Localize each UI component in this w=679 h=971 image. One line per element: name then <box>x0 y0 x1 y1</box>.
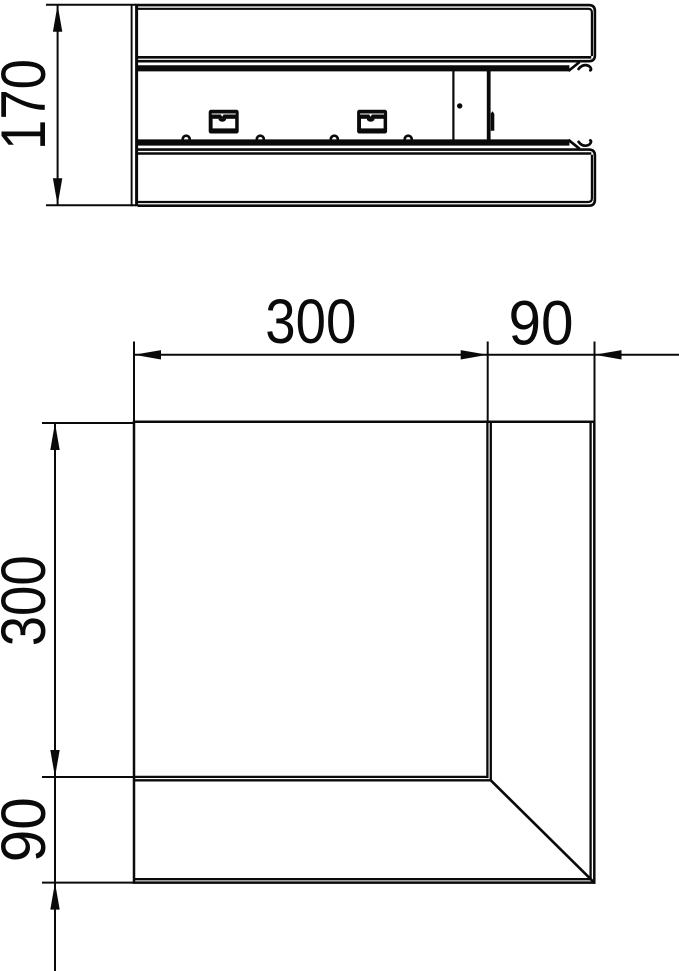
svg-text:90: 90 <box>0 797 59 862</box>
svg-text:170: 170 <box>0 59 59 150</box>
svg-text:300: 300 <box>0 555 59 646</box>
svg-text:300: 300 <box>265 287 356 357</box>
svg-text:90: 90 <box>509 289 574 359</box>
